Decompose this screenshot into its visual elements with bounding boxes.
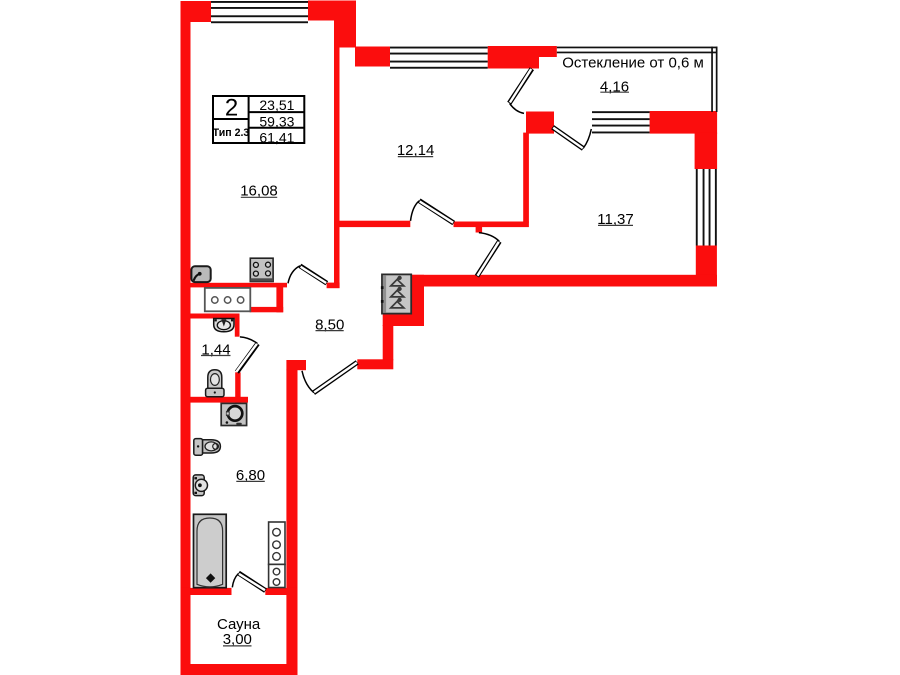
- svg-text:61,41: 61,41: [259, 129, 294, 145]
- svg-text:Остекление от 0,6 м: Остекление от 0,6 м: [562, 54, 704, 71]
- svg-text:59,33: 59,33: [259, 113, 294, 129]
- svg-text:Тип 2.3: Тип 2.3: [213, 127, 250, 139]
- svg-text:2: 2: [225, 95, 238, 122]
- svg-text:23,51: 23,51: [259, 97, 294, 113]
